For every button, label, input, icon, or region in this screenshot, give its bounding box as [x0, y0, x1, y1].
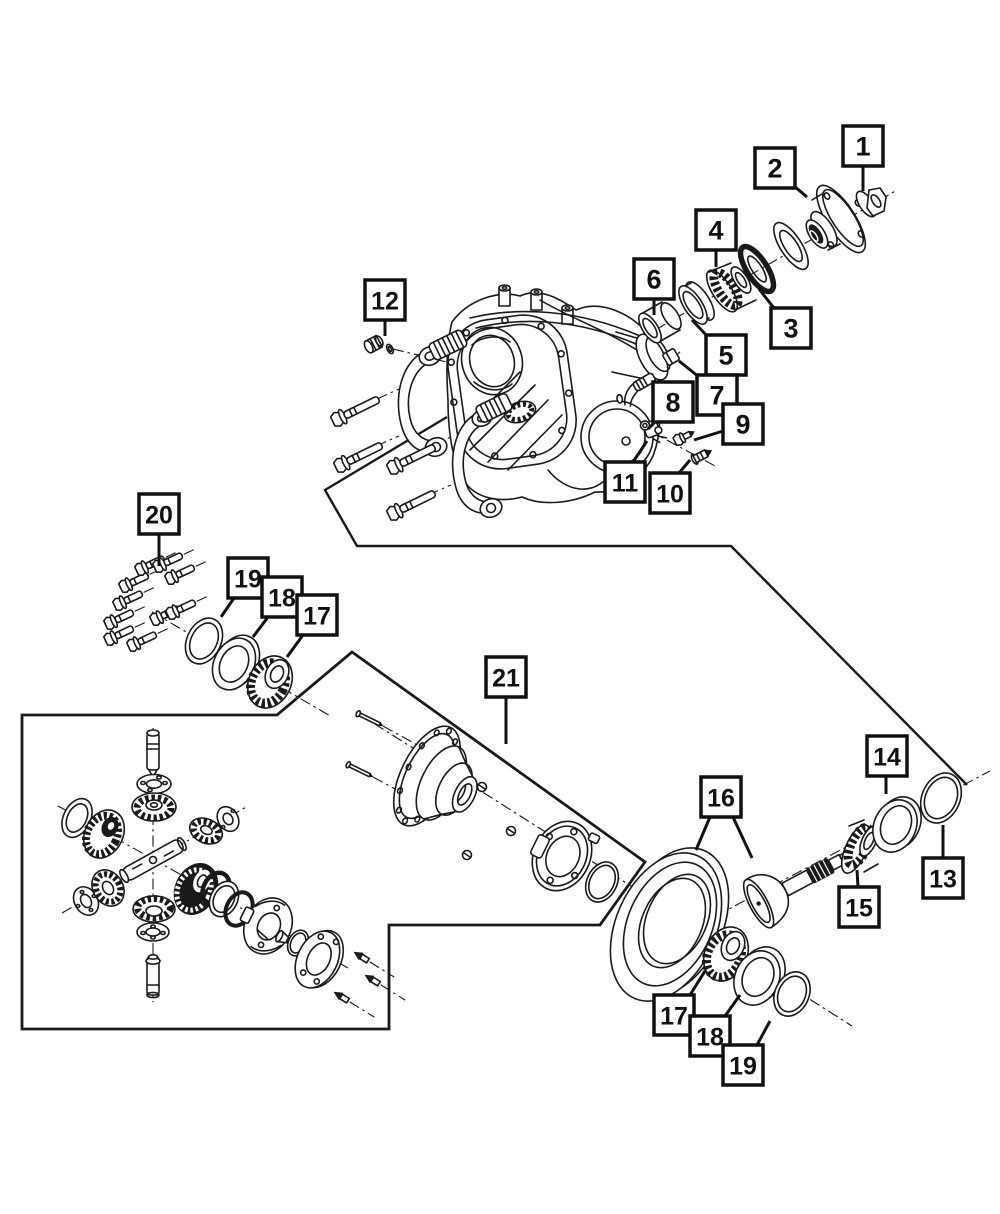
svg-text:15: 15: [845, 895, 873, 923]
svg-text:8: 8: [665, 388, 680, 418]
case-screw-b: [345, 761, 375, 780]
thrust-washer-top: [137, 775, 171, 794]
callout-17-left: 17: [297, 595, 337, 635]
pinion-nut-1-part: [853, 188, 886, 220]
callout-17-bottom: 17: [654, 995, 694, 1035]
svg-text:18: 18: [268, 585, 296, 613]
callout-19-left-leader: [221, 598, 234, 617]
svg-text:4: 4: [708, 216, 723, 246]
svg-text:13: 13: [929, 866, 957, 894]
svg-text:9: 9: [735, 410, 750, 440]
callout-14: 14: [867, 736, 907, 776]
callout-1: 1: [843, 126, 883, 166]
diff-case-21: [345, 710, 624, 907]
stud-10-part: [690, 446, 715, 466]
case-screw-a: [355, 710, 385, 729]
exploded-parts-diagram: 124635789111012201918172116141315171819: [0, 0, 1000, 1214]
spider-gear-top: [132, 793, 176, 821]
callout-16-leader: [733, 817, 752, 858]
callout-16: 16: [701, 777, 741, 817]
callout-9-leader: [694, 431, 723, 440]
bottom-bearing-set: [695, 920, 816, 1022]
callout-21: 21: [486, 657, 526, 697]
svg-text:5: 5: [718, 341, 733, 371]
left-bearing-set: [178, 612, 301, 715]
svg-text:18: 18: [696, 1024, 724, 1052]
fill-plug-12-part: [363, 334, 395, 355]
pinion-shaft-pin-top: [147, 730, 159, 777]
callout-15-leader: [857, 870, 858, 887]
callout-8: 8: [653, 382, 693, 422]
spider-gear-bottom: [133, 896, 175, 922]
callout-11: 11: [605, 462, 645, 502]
callout-12: 12: [365, 280, 405, 320]
pinion-shaft-pin-bottom: [146, 955, 160, 998]
callout-6: 6: [634, 259, 674, 299]
svg-text:6: 6: [646, 265, 661, 295]
stud-9-part: [672, 426, 697, 447]
parts-diagram-page: 124635789111012201918172116141315171819: [0, 0, 1000, 1214]
svg-text:10: 10: [656, 481, 684, 509]
callout-20: 20: [139, 494, 179, 534]
svg-text:20: 20: [145, 502, 173, 530]
callout-15: 15: [839, 887, 879, 927]
callout-2: 2: [755, 148, 795, 188]
svg-text:3: 3: [783, 314, 798, 344]
callout-5: 5: [706, 335, 746, 375]
shim-14-part: [865, 790, 929, 859]
callout-4: 4: [696, 210, 736, 250]
callout-10-leader: [679, 460, 690, 473]
inset-diff-internals: [56, 730, 408, 1021]
svg-text:16: 16: [707, 785, 735, 813]
svg-text:12: 12: [371, 288, 399, 316]
svg-text:17: 17: [303, 603, 331, 631]
svg-text:2: 2: [767, 154, 782, 184]
svg-text:19: 19: [729, 1053, 757, 1081]
callout-10: 10: [650, 473, 690, 513]
callout-18-bottom-leader: [725, 995, 740, 1016]
svg-text:1: 1: [855, 132, 870, 162]
svg-text:14: 14: [873, 744, 901, 772]
callout-17-left-leader: [287, 635, 303, 657]
housing-bolts: [329, 392, 438, 522]
callout-9: 9: [723, 404, 763, 444]
callout-19-bottom-leader: [757, 1021, 770, 1045]
thrust-washer-bottom: [137, 923, 169, 941]
callout-18-left-leader: [253, 617, 268, 637]
svg-text:19: 19: [234, 566, 262, 594]
callout-16-leader: [696, 817, 710, 850]
svg-text:21: 21: [492, 665, 520, 693]
callout-13: 13: [923, 858, 963, 898]
callout-3: 3: [771, 308, 811, 348]
svg-text:11: 11: [612, 470, 639, 498]
ring-gear-16-part: [589, 830, 751, 1018]
callout-19-bottom: 19: [723, 1045, 763, 1085]
svg-text:17: 17: [660, 1003, 688, 1031]
